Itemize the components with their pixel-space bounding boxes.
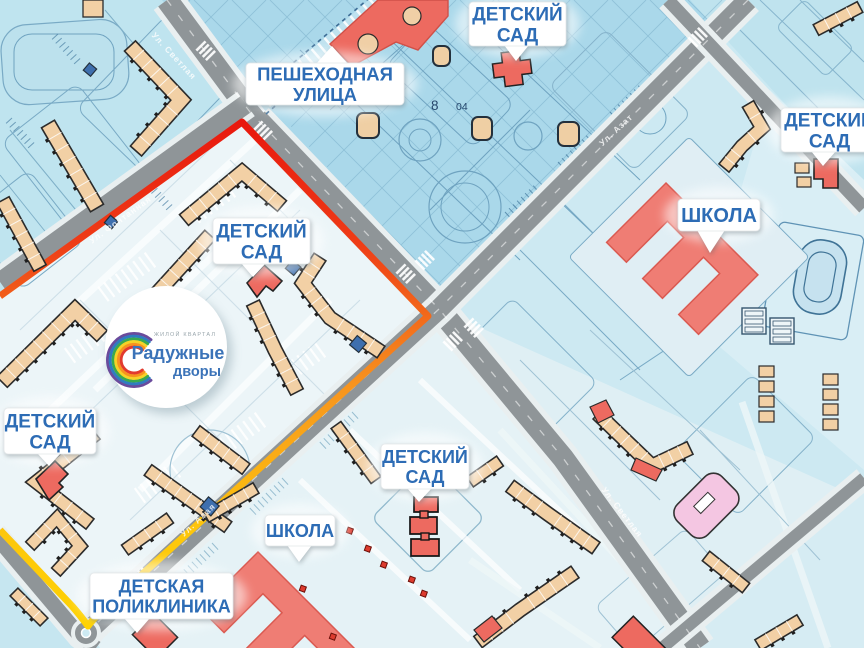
svg-text:САД: САД [497, 25, 539, 46]
svg-text:САД: САД [29, 432, 71, 453]
svg-text:ШКОЛА: ШКОЛА [681, 205, 757, 227]
svg-text:ДЕТСКИЙ: ДЕТСКИЙ [382, 446, 468, 467]
svg-text:04: 04 [456, 101, 468, 113]
svg-text:ПОЛИКЛИНИКА: ПОЛИКЛИНИКА [92, 597, 231, 617]
svg-text:ШКОЛА: ШКОЛА [266, 521, 334, 541]
svg-text:ДЕТСКИЙ: ДЕТСКИЙ [216, 220, 306, 242]
svg-text:Радужные: Радужные [132, 343, 225, 363]
svg-text:ДЕТСКИЙ: ДЕТСКИЙ [472, 3, 562, 25]
svg-text:дворы: дворы [173, 364, 221, 380]
svg-text:ЖИЛОЙ КВАРТАЛ: ЖИЛОЙ КВАРТАЛ [154, 330, 216, 338]
svg-text:САД: САД [809, 131, 851, 152]
svg-text:ДЕТСКАЯ: ДЕТСКАЯ [119, 577, 205, 597]
svg-text:УЛИЦА: УЛИЦА [293, 84, 357, 105]
svg-text:САД: САД [405, 467, 444, 487]
svg-text:8: 8 [431, 98, 439, 113]
svg-text:ДЕТСКИЙ: ДЕТСКИЙ [784, 109, 864, 131]
svg-text:САД: САД [241, 242, 283, 263]
svg-text:ДЕТСКИЙ: ДЕТСКИЙ [5, 410, 95, 432]
svg-text:ПЕШЕХОДНАЯ: ПЕШЕХОДНАЯ [257, 63, 393, 84]
